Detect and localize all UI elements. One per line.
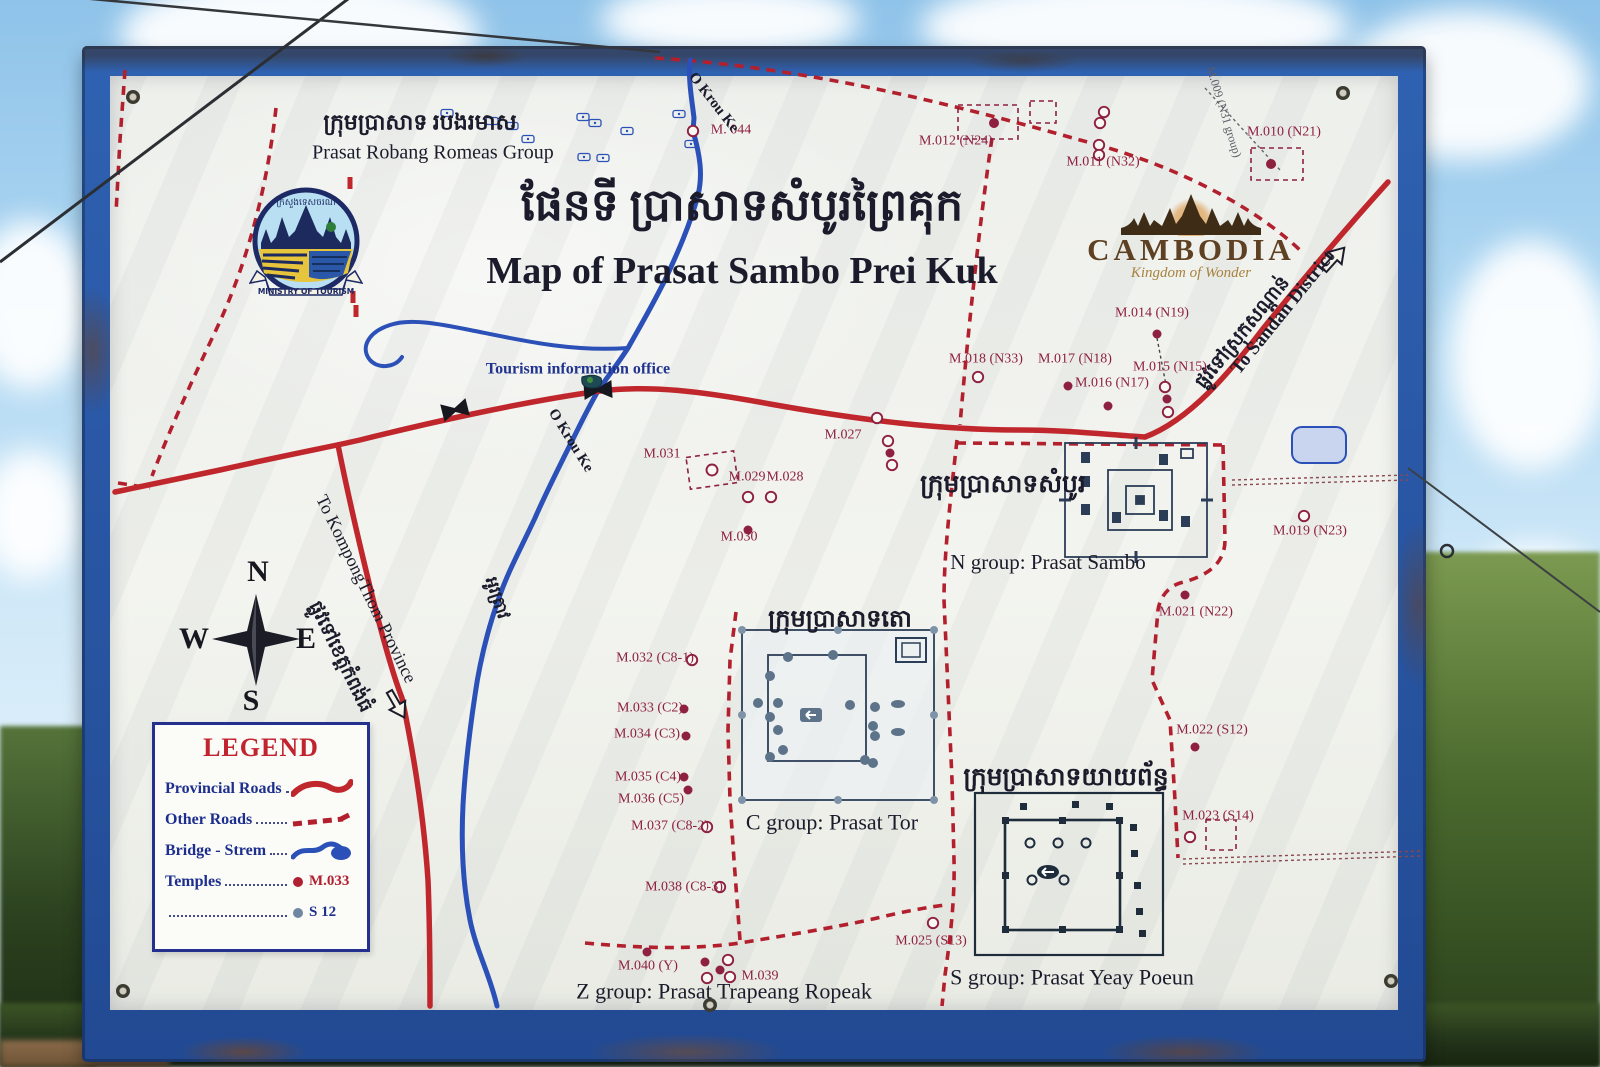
compass-e: E xyxy=(296,622,316,656)
cambodia-towers-silhouette xyxy=(1121,194,1261,235)
legend-sample: M.033 xyxy=(309,873,349,890)
legend-sample: S 12 xyxy=(309,904,336,921)
compass-n: N xyxy=(247,555,269,589)
legend-leader xyxy=(256,812,287,824)
compass-s: S xyxy=(243,684,260,718)
legend-box: LEGEND Provincial Roads Other Roads Brid… xyxy=(152,722,370,952)
marker-tb xyxy=(621,128,633,135)
marker-f xyxy=(643,948,652,957)
marker-o xyxy=(766,492,776,502)
marker-f xyxy=(680,705,689,714)
marker-f xyxy=(1104,402,1113,411)
marker-o xyxy=(1163,407,1173,417)
temple-red-icon: M.033 xyxy=(291,873,357,890)
marker-f xyxy=(1191,743,1200,752)
marker-f xyxy=(682,732,691,741)
legend-row-temples: Temples M.033 xyxy=(165,866,357,897)
ministry-of-tourism-logo: ក្រសួងទេសចរណ៍ MINISTRY OF TOURISM xyxy=(249,185,363,307)
legend-title: LEGEND xyxy=(165,733,357,763)
river-o-krou-ke xyxy=(462,60,700,1006)
road-dashed-central xyxy=(942,440,957,1006)
legend-row-temples-s: S 12 xyxy=(165,897,357,928)
legend-leader xyxy=(225,874,287,886)
marker-o xyxy=(1094,140,1104,150)
bridge-stream-icon xyxy=(291,839,357,863)
marker-tb xyxy=(597,155,609,162)
marker-f xyxy=(886,449,895,458)
marker-o xyxy=(688,126,698,136)
marker-tb xyxy=(506,123,518,130)
legend-leader xyxy=(270,843,287,855)
marker-f xyxy=(684,786,693,795)
legend-row-other-roads: Other Roads xyxy=(165,804,357,835)
marker-o xyxy=(887,460,897,470)
road-dashed-cgroup xyxy=(728,612,740,940)
rivers xyxy=(366,60,701,1006)
marker-o xyxy=(723,955,733,965)
legend-leader xyxy=(169,905,287,917)
marker-f xyxy=(701,958,710,967)
river-branch xyxy=(366,322,628,366)
road-dashed-left-top xyxy=(116,70,125,213)
marker-o xyxy=(687,655,697,665)
marker-tb xyxy=(578,154,590,161)
legend-label: Temples xyxy=(165,873,221,891)
marker-rf2 xyxy=(1251,148,1303,180)
tourism-office-icon xyxy=(582,375,602,388)
legend-row-provincial-roads: Provincial Roads xyxy=(165,773,357,804)
inset-c-group xyxy=(738,626,938,804)
marker-tb xyxy=(589,120,601,127)
marker-tb xyxy=(577,114,589,121)
marker-o xyxy=(715,882,725,892)
marker-o xyxy=(928,918,938,928)
marker-o xyxy=(1095,118,1105,128)
compass-rose xyxy=(212,594,300,686)
road-dashed-south xyxy=(585,905,945,948)
legend-label: Provincial Roads xyxy=(165,780,282,798)
other-road-icon xyxy=(291,812,357,828)
marker-o xyxy=(1094,150,1104,160)
marker-ro xyxy=(686,451,738,489)
legend-label: Other Roads xyxy=(165,811,252,829)
photo-of-map-billboard: { "colors":{ "roadSolid":"#c0272d","road… xyxy=(0,0,1600,1067)
marker-tb xyxy=(486,118,498,125)
marker-o xyxy=(743,492,753,502)
marker-sq2 xyxy=(1206,820,1236,850)
compass-w: W xyxy=(179,622,209,656)
road-east-west xyxy=(115,389,1145,492)
pond xyxy=(1292,427,1346,463)
marker-f xyxy=(1163,395,1172,404)
marker-o xyxy=(702,973,712,983)
marker-o xyxy=(725,972,735,982)
marker-sq xyxy=(1030,101,1056,123)
marker-f xyxy=(1064,382,1073,391)
marker-f xyxy=(744,526,753,535)
marker-o xyxy=(973,372,983,382)
marker-o xyxy=(883,436,893,446)
marker-tb xyxy=(673,111,685,118)
cambodia-name: CAMBODIA xyxy=(1078,232,1304,268)
marker-f xyxy=(1181,591,1190,600)
inset-s-group xyxy=(975,793,1163,955)
marker-tb xyxy=(522,136,534,143)
legend-leader xyxy=(286,781,287,793)
provincial-road-icon xyxy=(291,779,357,799)
legend-label: Bridge - Strem xyxy=(165,842,266,860)
marker-o xyxy=(1160,382,1170,392)
marker-tb xyxy=(441,110,453,117)
legend-row-bridge-stream: Bridge - Strem xyxy=(165,835,357,866)
marker-o xyxy=(702,822,712,832)
marker-o xyxy=(1185,832,1195,842)
cambodia-logo: CAMBODIA Kingdom of Wonder xyxy=(1078,188,1304,284)
marker-o xyxy=(1099,107,1109,117)
inset-n-group xyxy=(1059,437,1213,563)
marker-o xyxy=(1299,511,1309,521)
temple-gray-icon: S 12 xyxy=(291,904,357,921)
marker-f xyxy=(680,773,689,782)
ministry-ribbon-text: MINISTRY OF TOURISM xyxy=(258,287,354,296)
marker-o xyxy=(872,413,882,423)
marker-f xyxy=(716,966,725,975)
marker-f xyxy=(1153,330,1162,339)
